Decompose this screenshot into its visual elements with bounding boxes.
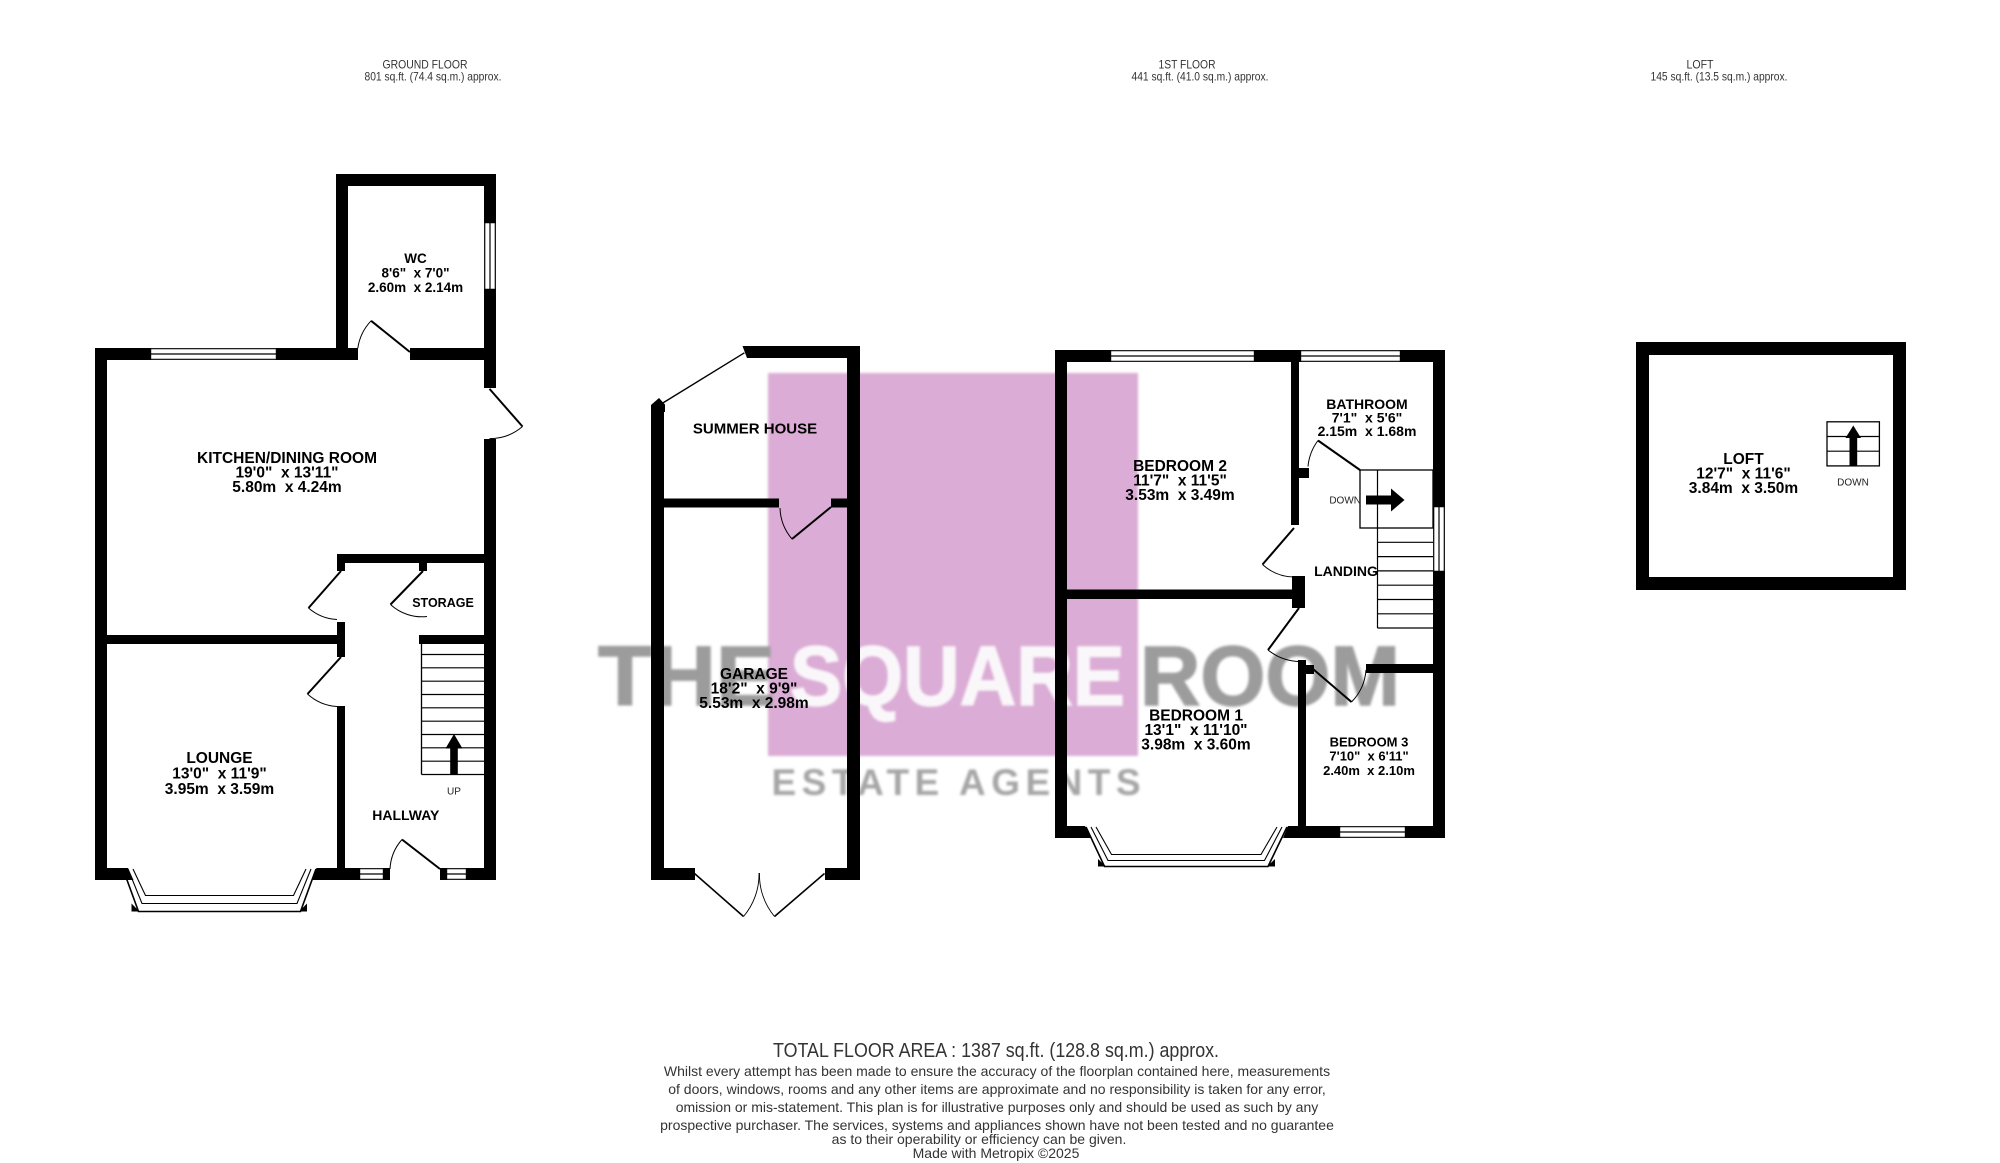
svg-text:2.60m x 2.14m: 2.60m x 2.14m	[368, 280, 463, 295]
svg-text:441 sq.ft. (41.0 sq.m.) approx: 441 sq.ft. (41.0 sq.m.) approx.	[1132, 70, 1269, 84]
svg-text:UP: UP	[447, 787, 461, 798]
svg-text:of doors, windows, rooms and a: of doors, windows, rooms and any other i…	[668, 1081, 1326, 1097]
svg-text:Whilst every attempt has been: Whilst every attempt has been made to en…	[664, 1063, 1330, 1079]
svg-text:5.53m x 2.98m: 5.53m x 2.98m	[699, 695, 808, 712]
svg-text:8'6" x 7'0": 8'6" x 7'0"	[381, 266, 449, 281]
svg-text:HALLWAY: HALLWAY	[372, 807, 440, 823]
svg-text:13'0" x 11'9": 13'0" x 11'9"	[172, 766, 266, 783]
svg-text:2.15m x 1.68m: 2.15m x 1.68m	[1318, 423, 1417, 439]
svg-text:5.80m x 4.24m: 5.80m x 4.24m	[232, 479, 341, 496]
svg-text:omission or mis-statement. Thi: omission or mis-statement. This plan is …	[676, 1099, 1319, 1115]
svg-text:3.95m x 3.59m: 3.95m x 3.59m	[165, 781, 274, 798]
svg-text:DOWN: DOWN	[1837, 478, 1869, 489]
svg-text:801 sq.ft. (74.4 sq.m.) approx: 801 sq.ft. (74.4 sq.m.) approx.	[365, 70, 502, 84]
svg-text:2.40m x 2.10m: 2.40m x 2.10m	[1323, 763, 1415, 778]
svg-text:Made with Metropix ©2025: Made with Metropix ©2025	[913, 1145, 1080, 1161]
svg-text:WC: WC	[404, 251, 427, 266]
svg-text:145 sq.ft. (13.5 sq.m.) approx: 145 sq.ft. (13.5 sq.m.) approx.	[1651, 70, 1788, 84]
svg-text:3.84m x 3.50m: 3.84m x 3.50m	[1689, 480, 1798, 497]
svg-text:SUMMER HOUSE: SUMMER HOUSE	[693, 421, 817, 438]
svg-text:DOWN: DOWN	[1329, 496, 1361, 507]
svg-text:BEDROOM 3: BEDROOM 3	[1330, 734, 1409, 749]
svg-text:TOTAL FLOOR AREA : 1387 sq.ft.: TOTAL FLOOR AREA : 1387 sq.ft. (128.8 sq…	[773, 1039, 1219, 1062]
svg-text:LOUNGE: LOUNGE	[186, 750, 252, 767]
svg-text:STORAGE: STORAGE	[412, 596, 474, 610]
svg-text:LANDING: LANDING	[1314, 563, 1378, 579]
svg-text:7'10" x 6'11": 7'10" x 6'11"	[1329, 749, 1408, 764]
svg-text:3.53m x 3.49m: 3.53m x 3.49m	[1125, 487, 1234, 504]
svg-text:SQUARE: SQUARE	[790, 629, 1125, 723]
svg-text:3.98m x 3.60m: 3.98m x 3.60m	[1141, 737, 1250, 754]
